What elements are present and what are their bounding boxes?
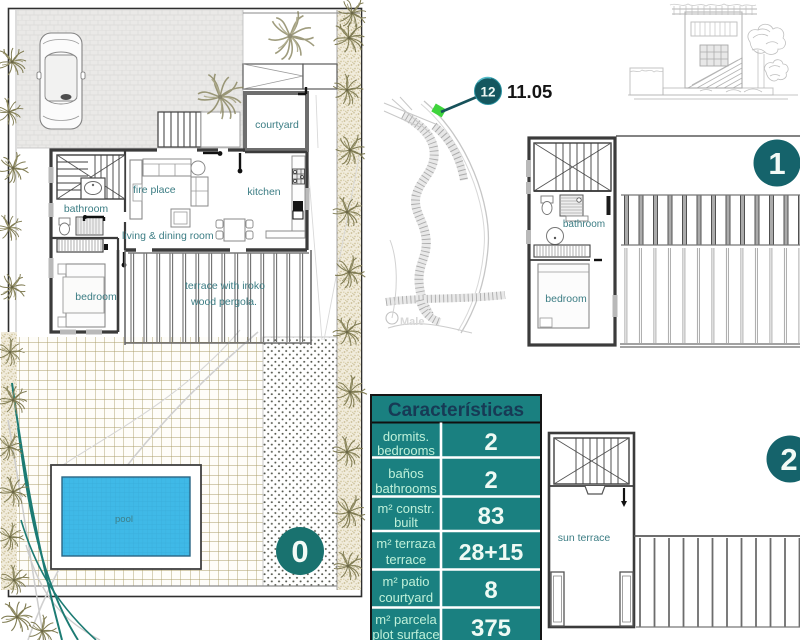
svg-text:2: 2 — [780, 442, 797, 477]
svg-text:bedroom: bedroom — [545, 293, 587, 305]
svg-text:plot surface: plot surface — [372, 627, 439, 640]
svg-text:courtyard: courtyard — [379, 590, 433, 605]
svg-text:living & dining room: living & dining room — [122, 230, 214, 242]
svg-text:kitchen: kitchen — [247, 186, 280, 198]
svg-text:wood pergola.: wood pergola. — [190, 296, 257, 308]
svg-text:built: built — [394, 515, 418, 530]
svg-text:12: 12 — [480, 85, 495, 100]
svg-text:8: 8 — [484, 577, 497, 604]
svg-text:m² patio: m² patio — [383, 574, 430, 589]
svg-text:terrace with iroko: terrace with iroko — [185, 280, 265, 292]
svg-text:courtyard: courtyard — [255, 119, 299, 131]
svg-text:pool: pool — [115, 514, 133, 525]
svg-text:terrace: terrace — [386, 552, 426, 567]
svg-text:83: 83 — [478, 503, 505, 530]
svg-text:11.05: 11.05 — [507, 81, 552, 102]
svg-text:bathroom: bathroom — [64, 203, 109, 215]
svg-text:m² terraza: m² terraza — [376, 536, 436, 551]
svg-text:28+15: 28+15 — [459, 539, 524, 565]
svg-text:sun terrace: sun terrace — [558, 532, 611, 544]
svg-text:dormits.: dormits. — [383, 429, 429, 444]
svg-text:Male: Male — [400, 316, 424, 328]
svg-text:1: 1 — [768, 146, 785, 181]
svg-text:bedrooms: bedrooms — [377, 443, 435, 458]
svg-text:bathroom: bathroom — [563, 219, 605, 230]
svg-text:baños: baños — [388, 466, 424, 481]
svg-text:0: 0 — [291, 534, 308, 569]
svg-text:Características: Características — [388, 400, 524, 421]
svg-text:m² constr.: m² constr. — [377, 501, 434, 516]
svg-text:375: 375 — [471, 615, 511, 640]
svg-text:m² parcela: m² parcela — [375, 612, 437, 627]
svg-text:fire place: fire place — [133, 184, 176, 196]
svg-text:bedroom: bedroom — [75, 291, 117, 303]
svg-text:2: 2 — [484, 429, 497, 456]
svg-text:bathrooms: bathrooms — [375, 481, 437, 496]
svg-text:2: 2 — [484, 467, 497, 494]
